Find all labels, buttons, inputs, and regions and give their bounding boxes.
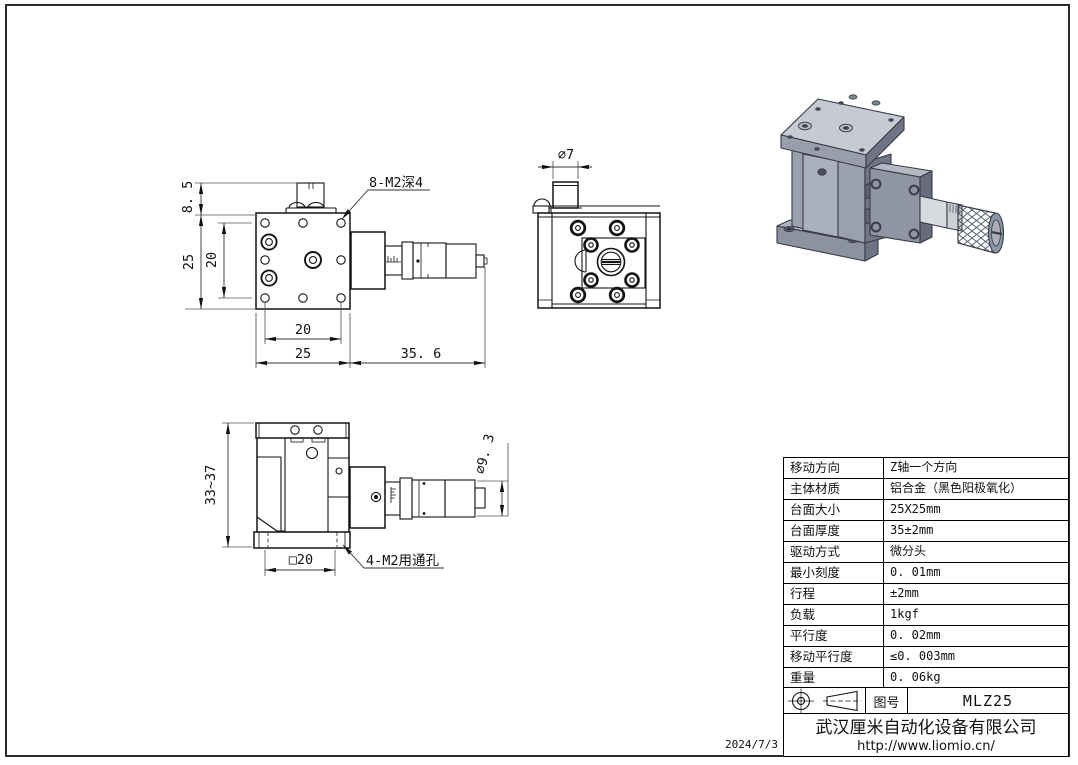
spec-table: 移动方向Z轴一个方向 主体材质铝合金（黑色阳极氧化） 台面大小25X25mm 台… [783, 457, 1069, 689]
dim-25-left: 25 [181, 254, 197, 270]
drawing-no-value: MLZ25 [908, 688, 1068, 714]
first-angle-projection-icon [785, 688, 865, 714]
dim-20-bottom: 20 [295, 322, 311, 338]
isometric-view [777, 95, 1004, 261]
company-name: 武汉厘米自动化设备有限公司 [784, 717, 1068, 739]
table-row: 移动平行度≤0. 003mm [784, 647, 1068, 668]
dim-d9-3: ∅9. 3 [472, 432, 498, 475]
spec-value: ±2mm [884, 584, 1068, 604]
spec-label: 重量 [784, 668, 884, 688]
spec-value: 0. 01mm [884, 563, 1068, 583]
note-8-m2: 8-M2深4 [369, 175, 423, 191]
dim-33-37: 33~37 [203, 465, 219, 506]
spec-value: 1kgf [884, 605, 1068, 625]
spec-label: 驱动方式 [784, 542, 884, 562]
micrometer-side [350, 467, 485, 528]
spec-value: 0. 02mm [884, 626, 1068, 646]
spec-value: 35±2mm [884, 521, 1068, 541]
side-view: ∅7 [533, 147, 660, 308]
lower-view: 33~37 □20 4-M2用通孔 ∅9. 3 [203, 423, 508, 576]
company-website: http://www.liomio.cn/ [784, 739, 1068, 754]
projection-symbols [784, 688, 866, 714]
spec-label: 行程 [784, 584, 884, 604]
dim-35-6: 35. 6 [401, 346, 442, 362]
table-row: 移动方向Z轴一个方向 [784, 458, 1068, 479]
spec-label: 平行度 [784, 626, 884, 646]
front-view: 8. 5 25 20 20 25 35. 6 8-M2深4 [180, 175, 487, 368]
table-row: 驱动方式微分头 [784, 542, 1068, 563]
spec-value: 铝合金（黑色阳极氧化） [884, 479, 1068, 499]
table-row: 主体材质铝合金（黑色阳极氧化） [784, 479, 1068, 500]
dim-8-5: 8. 5 [180, 181, 196, 214]
table-row: 台面厚度35±2mm [784, 521, 1068, 542]
spec-label: 移动方向 [784, 458, 884, 478]
table-row: 最小刻度0. 01mm [784, 563, 1068, 584]
micrometer-front [351, 232, 487, 289]
table-row: 平行度0. 02mm [784, 626, 1068, 647]
dim-20-left: 20 [204, 252, 220, 268]
dim-sq20: □20 [289, 552, 313, 568]
drawing-no-label: 图号 [866, 688, 908, 714]
spec-value: Z轴一个方向 [884, 458, 1068, 478]
table-row: 重量0. 06kg [784, 668, 1068, 689]
table-row: 负载1kgf [784, 605, 1068, 626]
spec-label: 主体材质 [784, 479, 884, 499]
dim-d7: ∅7 [558, 147, 574, 163]
title-block-symbol-row: 图号 MLZ25 [783, 687, 1069, 715]
spec-value: 微分头 [884, 542, 1068, 562]
note-4-m2: 4-M2用通孔 [366, 553, 440, 569]
spec-value: 0. 06kg [884, 668, 1068, 688]
drawing-date: 2024/7/3 [688, 738, 778, 751]
dim-25-bottom: 25 [295, 346, 311, 362]
table-row: 台面大小25X25mm [784, 500, 1068, 521]
drawing-sheet: 8. 5 25 20 20 25 35. 6 8-M2深4 [0, 0, 1078, 765]
spec-label: 台面厚度 [784, 521, 884, 541]
spec-label: 台面大小 [784, 500, 884, 520]
spec-value: 25X25mm [884, 500, 1068, 520]
spec-label: 最小刻度 [784, 563, 884, 583]
table-row: 行程±2mm [784, 584, 1068, 605]
spec-label: 负载 [784, 605, 884, 625]
spec-label: 移动平行度 [784, 647, 884, 667]
spec-value: ≤0. 003mm [884, 647, 1068, 667]
company-block: 武汉厘米自动化设备有限公司 http://www.liomio.cn/ [783, 713, 1069, 757]
